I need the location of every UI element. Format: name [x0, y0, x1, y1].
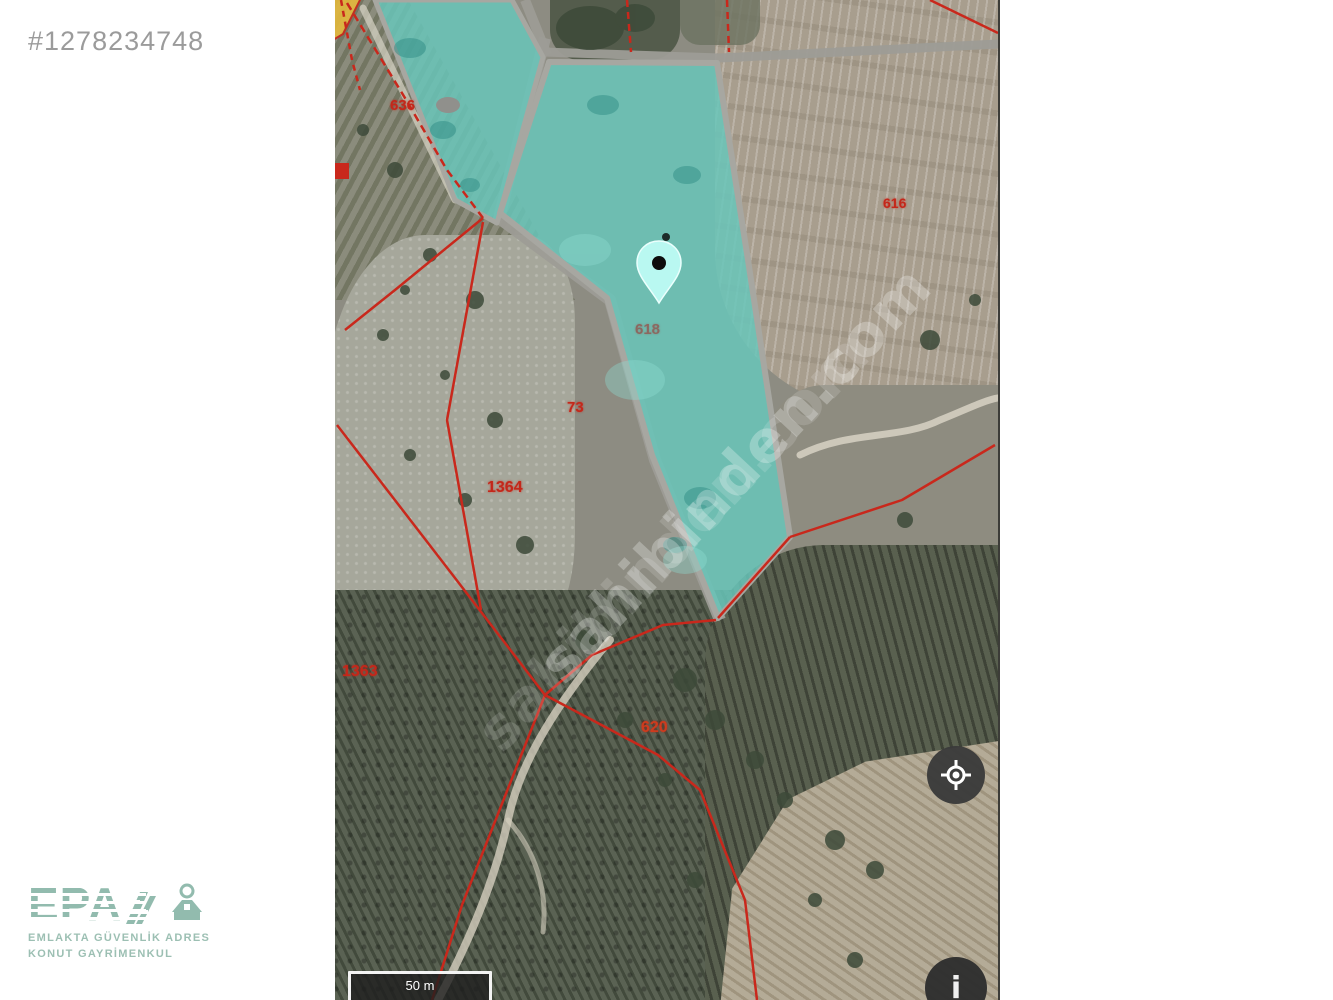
parcel-number-618: 618: [635, 322, 660, 337]
highlighted-parcel-main: [500, 62, 790, 618]
logo-tagline-1: EMLAKTA GÜVENLİK ADRES: [28, 932, 228, 944]
map-overlay: [335, 0, 998, 1000]
scale-label: 50 m: [406, 978, 435, 993]
dirt-trail-bottomleft: [438, 640, 610, 1000]
parcel-number-1364: 1364: [487, 480, 523, 495]
logo-house-icon: [168, 882, 206, 926]
dirt-trail-branch: [508, 820, 544, 932]
page: { "listing_id": "#1278234748", "logo": {…: [0, 0, 1333, 1000]
info-icon: i: [951, 971, 961, 1000]
parcel-number-616: 616: [883, 196, 906, 211]
locate-button[interactable]: [927, 746, 985, 804]
rock-on-road: [436, 97, 460, 113]
logo-diagonal-stripes-icon: [124, 888, 158, 924]
logo-brand-text: EPA: [28, 880, 122, 928]
parcel-number-73: 73: [567, 400, 584, 415]
parcel-number-636: 636: [390, 98, 415, 113]
agency-logo: EPA EMLAKTA GÜVENLİK ADRES KONUT GAYRİME…: [28, 876, 228, 960]
parcel-number-620: 620: [641, 720, 668, 735]
target-icon: [940, 759, 972, 791]
satellite-map[interactable]: 636 616 618 73 1364 1363 620 sahibinden.…: [335, 0, 1000, 1000]
logo-mark: EPA: [28, 876, 228, 928]
scale-bar: 50 m: [348, 971, 492, 1000]
logo-tagline-2: KONUT GAYRİMENKUL: [28, 948, 228, 960]
dirt-trail-right: [800, 398, 998, 455]
clipped-parcel-number-mark: [335, 163, 349, 179]
parcel-number-1363: 1363: [342, 664, 378, 679]
listing-id: #1278234748: [28, 26, 204, 57]
road-top: [543, 44, 998, 58]
